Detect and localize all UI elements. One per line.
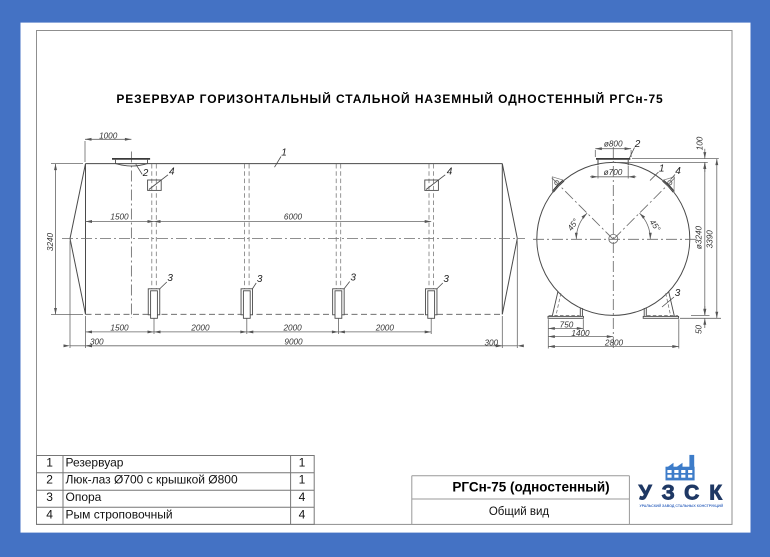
svg-text:ø800: ø800 [604, 140, 623, 149]
svg-text:4: 4 [447, 167, 453, 178]
svg-text:РЕЗЕРВУАР ГОРИЗОНТАЛЬНЫЙ СТАЛЬ: РЕЗЕРВУАР ГОРИЗОНТАЛЬНЫЙ СТАЛЬНОЙ НАЗЕМН… [116, 91, 663, 106]
svg-text:Люк-лаз Ø700 с крышкой Ø800: Люк-лаз Ø700 с крышкой Ø800 [66, 473, 238, 487]
svg-text:Рым строповочный: Рым строповочный [66, 507, 173, 521]
svg-text:1500: 1500 [110, 213, 129, 222]
svg-text:1: 1 [299, 473, 306, 487]
svg-text:3: 3 [257, 274, 263, 285]
svg-text:300: 300 [484, 338, 498, 347]
svg-text:1000: 1000 [99, 131, 118, 140]
svg-text:1400: 1400 [571, 329, 590, 338]
svg-text:3: 3 [675, 288, 681, 299]
svg-text:3: 3 [167, 273, 173, 284]
svg-text:1: 1 [299, 455, 306, 469]
svg-text:4: 4 [46, 507, 53, 521]
svg-text:100: 100 [695, 136, 704, 150]
svg-text:2000: 2000 [190, 324, 210, 333]
svg-text:4: 4 [299, 490, 306, 504]
svg-text:4: 4 [299, 507, 306, 521]
svg-text:Резервуар: Резервуар [66, 455, 124, 469]
svg-text:9000: 9000 [284, 338, 303, 347]
svg-text:1: 1 [281, 148, 287, 159]
svg-text:50: 50 [695, 325, 704, 335]
svg-text:2: 2 [634, 139, 641, 150]
svg-text:1: 1 [46, 455, 53, 469]
svg-text:300: 300 [90, 338, 104, 347]
svg-text:Опора: Опора [66, 490, 102, 504]
svg-text:1: 1 [659, 163, 665, 174]
svg-text:3390: 3390 [706, 230, 715, 249]
svg-text:2000: 2000 [375, 324, 395, 333]
svg-text:1500: 1500 [110, 324, 129, 333]
svg-text:3: 3 [443, 274, 449, 285]
svg-text:ø700: ø700 [604, 168, 623, 177]
svg-text:3240: 3240 [46, 232, 55, 251]
svg-text:ø3240: ø3240 [695, 225, 704, 249]
svg-text:2: 2 [46, 473, 53, 487]
svg-text:УРАЛЬСКИЙ ЗАВОД СТАЛЬНЫХ КОНСТ: УРАЛЬСКИЙ ЗАВОД СТАЛЬНЫХ КОНСТРУКЦИЙ [640, 503, 724, 508]
svg-text:3: 3 [46, 490, 53, 504]
svg-text:4: 4 [169, 167, 175, 178]
svg-text:РГСн-75 (одностенный): РГСн-75 (одностенный) [452, 479, 609, 494]
svg-text:2000: 2000 [282, 324, 302, 333]
svg-text:3: 3 [350, 273, 356, 284]
svg-text:2: 2 [142, 168, 149, 179]
svg-text:4: 4 [675, 166, 681, 177]
svg-text:Общий вид: Общий вид [489, 506, 550, 518]
svg-text:2800: 2800 [604, 339, 624, 348]
svg-text:6000: 6000 [284, 213, 303, 222]
